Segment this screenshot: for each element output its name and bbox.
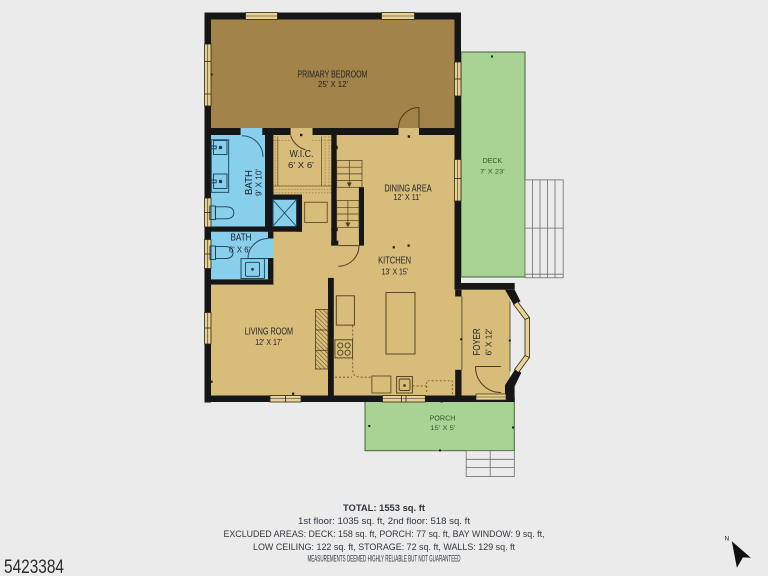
- svg-text:N: N: [725, 536, 730, 543]
- svg-text:1st floor: 1035 sq. ft, 2nd fl: 1st floor: 1035 sq. ft, 2nd floor: 518 s…: [298, 516, 471, 526]
- svg-text:12' X 17': 12' X 17': [255, 338, 282, 347]
- svg-text:6' X 6': 6' X 6': [229, 245, 250, 254]
- svg-text:25' X 12': 25' X 12': [318, 80, 348, 89]
- svg-text:7' X 23': 7' X 23': [480, 168, 505, 175]
- svg-text:W.I.C.: W.I.C.: [290, 149, 314, 160]
- svg-text:LOW CEILING: 122 sq. ft, STORA: LOW CEILING: 122 sq. ft, STORAGE: 72 sq.…: [253, 542, 515, 552]
- svg-text:TOTAL: 1553 sq. ft: TOTAL: 1553 sq. ft: [343, 503, 425, 513]
- svg-text:FOYER: FOYER: [472, 329, 483, 356]
- svg-text:LIVING ROOM: LIVING ROOM: [245, 327, 293, 338]
- svg-text:BATH: BATH: [231, 232, 252, 243]
- svg-text:KITCHEN: KITCHEN: [378, 256, 411, 267]
- svg-text:6' X 12': 6' X 12': [485, 328, 494, 355]
- svg-text:13' X 15': 13' X 15': [381, 268, 408, 277]
- svg-text:15' X 5': 15' X 5': [430, 425, 455, 432]
- svg-text:12' X 11': 12' X 11': [393, 193, 421, 202]
- svg-text:6' X 6': 6' X 6': [288, 161, 315, 170]
- svg-text:BATH: BATH: [244, 170, 255, 195]
- svg-text:9' X 10': 9' X 10': [255, 169, 264, 196]
- svg-text:DECK: DECK: [483, 156, 503, 165]
- svg-text:EXCLUDED AREAS: DECK: 158 sq.: EXCLUDED AREAS: DECK: 158 sq. ft, PORCH:…: [224, 529, 545, 539]
- svg-text:5423384: 5423384: [4, 557, 64, 576]
- svg-text:PORCH: PORCH: [430, 413, 456, 422]
- svg-text:MEASUREMENTS DEEMED HIGHLY REL: MEASUREMENTS DEEMED HIGHLY RELIABLE BUT …: [308, 554, 461, 564]
